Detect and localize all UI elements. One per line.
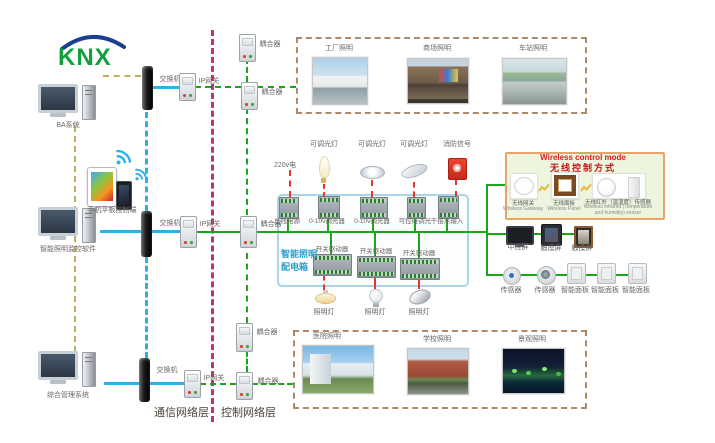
wireless-sensor-label-en: Wireless infrared (Temperature and humid…: [582, 204, 654, 216]
pc-management-system-label: 综合管理系统: [23, 392, 113, 400]
pc-management-system: [38, 351, 96, 389]
pc2-switch2-link: [100, 230, 141, 233]
wireless-panel-label-en: Wireless Panel: [544, 206, 584, 212]
power-220v-line: [289, 170, 291, 197]
scene-hospital-photo: [302, 345, 374, 394]
coupler-4: [236, 323, 253, 352]
dimmable-candle-lamp-icon: [319, 156, 330, 178]
coupler-chain-line-4: [246, 351, 248, 372]
wireless-gateway-label-en: Wireless Gateway: [499, 206, 547, 212]
wireless-feed-line: [488, 184, 505, 186]
coupler-4-label: 耦合器: [252, 329, 282, 337]
coupler-5-label: 耦合器: [253, 378, 283, 386]
thyristor-dimmer-device: [407, 197, 426, 219]
panel-title-line1: 智能照明: [281, 248, 317, 261]
out-lamp1-line: [323, 275, 325, 290]
diagram-canvas: KNX BA系统 智能照明监控软件 综合管理系统 手机平板控制端 交换机 IP网…: [0, 0, 715, 443]
rf-signal-icon: [580, 180, 592, 198]
wireless-gateway-icon: [510, 173, 538, 199]
pc-ba-system: [38, 84, 96, 122]
out-lamp2-line: [374, 277, 376, 289]
monitor-stand: [50, 380, 66, 384]
switch-driver-2: [357, 256, 396, 278]
coupler-1: [239, 34, 256, 62]
driver-1-label: 开关驱动器: [313, 246, 351, 253]
wireless-sensor-rect: [628, 177, 640, 198]
dimmable-downlight-icon: [360, 166, 385, 179]
scene-factory-photo: [312, 57, 368, 105]
smart-panel-1-label: 智能面板: [561, 287, 589, 295]
central-control-screen-icon: [506, 226, 534, 245]
dimmer-2-label: 0-10v调光器: [353, 218, 391, 225]
output-ceiling-lamp-icon: [315, 293, 336, 304]
wireless-sensor-icon: [592, 173, 646, 199]
dimmer-device-1: [318, 196, 340, 219]
scene-mall-photo: [407, 58, 469, 104]
ip-gateway-2-label: IP网关: [195, 221, 225, 229]
knx-logo: KNX: [56, 32, 134, 74]
driver-2-label: 开关驱动器: [357, 248, 395, 255]
gateway1-coupler-link: [195, 86, 241, 88]
dry-contact-input-device: [438, 196, 459, 219]
wireless-sensor-round: [597, 178, 616, 197]
coupler-2-label: 耦合器: [257, 89, 287, 97]
switch-3-label: 交换机: [152, 367, 182, 375]
dry-contact-input-label: 干接点输入: [428, 218, 466, 225]
panel-title: 智能照明 配电箱: [281, 248, 317, 273]
sensor-2-icon: [537, 266, 556, 285]
sensor-1-icon: [503, 267, 521, 285]
rf-signal-icon: [538, 180, 550, 198]
dim-lamp2-line: [371, 180, 373, 197]
switch-backbone-line-1: [145, 112, 148, 211]
knx-logo-text: KNX: [58, 44, 112, 72]
switch-driver-3: [400, 258, 440, 280]
pc-lighting-software-label: 智能照明监控软件: [18, 246, 118, 254]
monitor-icon: [38, 84, 78, 113]
output-lamp3-label: 照明灯: [405, 309, 433, 317]
output-lamp1-label: 照明灯: [310, 309, 338, 317]
screens-row-line-3: [560, 233, 574, 235]
fire-signal-label: 消防信号: [439, 141, 475, 149]
monitor-icon: [38, 351, 78, 380]
coupler-5: [236, 372, 253, 400]
fire-signal-line: [455, 179, 457, 197]
smart-panel-2-icon: [597, 263, 616, 284]
network-switch-3: [139, 358, 150, 402]
output-bulb-lamp-icon: [369, 289, 383, 303]
ip-gateway-1-label: IP网关: [194, 78, 224, 86]
pc-ba-system-label: BA系统: [28, 122, 108, 130]
switch3-gateway3-link: [150, 382, 184, 385]
gateway3-coupler-link: [200, 383, 236, 385]
phone-icon: [116, 181, 132, 210]
smart-panel-3-label: 智能面板: [622, 287, 650, 295]
power-220v-label: 220v电: [274, 162, 304, 170]
network-switch-2: [141, 211, 152, 257]
dimmer-1-label: 0-10v调光器: [308, 218, 346, 225]
sensor-1-label: 传感器: [498, 287, 524, 295]
sensors-row-line-5: [614, 274, 628, 276]
dimmable-panel-lamp-icon: [400, 161, 429, 181]
scene-factory-label: 工厂照明: [316, 45, 362, 53]
bus-power-label: 总线电源: [269, 218, 305, 225]
bus-power-device: [279, 197, 299, 219]
coupler-3: [240, 216, 257, 248]
coupler-chain-line-2: [246, 108, 248, 215]
dim-lamp1-label: 可调光灯: [306, 141, 342, 149]
communication-layer-label: 通信网络层: [154, 404, 209, 420]
touch-screen-1-icon: [541, 224, 562, 246]
switch2-gateway2-link: [152, 230, 180, 233]
tower-icon: [82, 85, 96, 120]
driver-3-label: 开关驱动器: [400, 250, 438, 257]
scene-school-label: 学校照明: [414, 336, 460, 344]
scene-hospital-label: 医院照明: [304, 333, 350, 341]
switch-backbone-line-2: [145, 257, 148, 358]
panel-title-line2: 配电箱: [281, 261, 317, 274]
sensor-2-label: 传感器: [532, 287, 558, 295]
network-switch-1: [142, 66, 153, 110]
fire-alarm-icon: [448, 158, 467, 180]
right-trunk-line: [486, 184, 488, 276]
screens-row-line-1: [488, 233, 506, 235]
control-layer-label: 控制网络层: [221, 404, 276, 420]
pc1-switch-link: [103, 75, 141, 77]
smart-panel-3-icon: [628, 263, 647, 284]
monitor-stand: [50, 236, 66, 240]
scene-landscape-photo: [502, 348, 565, 394]
switch-driver-1: [313, 254, 352, 276]
switch1-gateway1-link: [153, 86, 180, 89]
central-control-screen-label: 中控屏: [503, 244, 533, 252]
coupler-topframe-link: [257, 86, 296, 88]
ip-gateway-3-label: IP网关: [199, 375, 229, 383]
pc3-switch3-link: [104, 382, 139, 385]
dimmer-device-2: [360, 197, 388, 219]
scene-station-photo: [502, 58, 567, 105]
dim-lamp3-label: 可调光灯: [396, 141, 432, 149]
coupler-chain-line-3: [246, 253, 248, 323]
scene-landscape-label: 景观照明: [509, 336, 555, 344]
monitor-stand: [50, 113, 66, 117]
touch-screen-1-label: 触摸屏: [538, 245, 564, 253]
coupler-1-label: 耦合器: [255, 41, 285, 49]
smart-panel-2-label: 智能面板: [591, 287, 619, 295]
dim-lamp3-line: [413, 182, 415, 197]
dim-lamp2-label: 可调光灯: [354, 141, 390, 149]
tablet-icon: [87, 167, 117, 207]
scene-station-label: 车站照明: [510, 45, 556, 53]
tower-icon: [82, 352, 96, 387]
output-spot-lamp-icon: [407, 287, 432, 307]
touch-screen-2-label: 触摸屏: [569, 245, 595, 253]
sensors-row-line-1: [488, 274, 503, 276]
out-lamp3-line: [418, 279, 420, 289]
scene-school-photo: [407, 348, 469, 395]
output-lamp2-label: 照明灯: [361, 309, 389, 317]
sensors-row-line-2: [519, 274, 537, 276]
coupler-2: [241, 82, 258, 110]
scene-mall-label: 商场照明: [414, 45, 460, 53]
smart-panel-1-icon: [567, 263, 586, 284]
wireless-panel-icon: [551, 172, 579, 199]
